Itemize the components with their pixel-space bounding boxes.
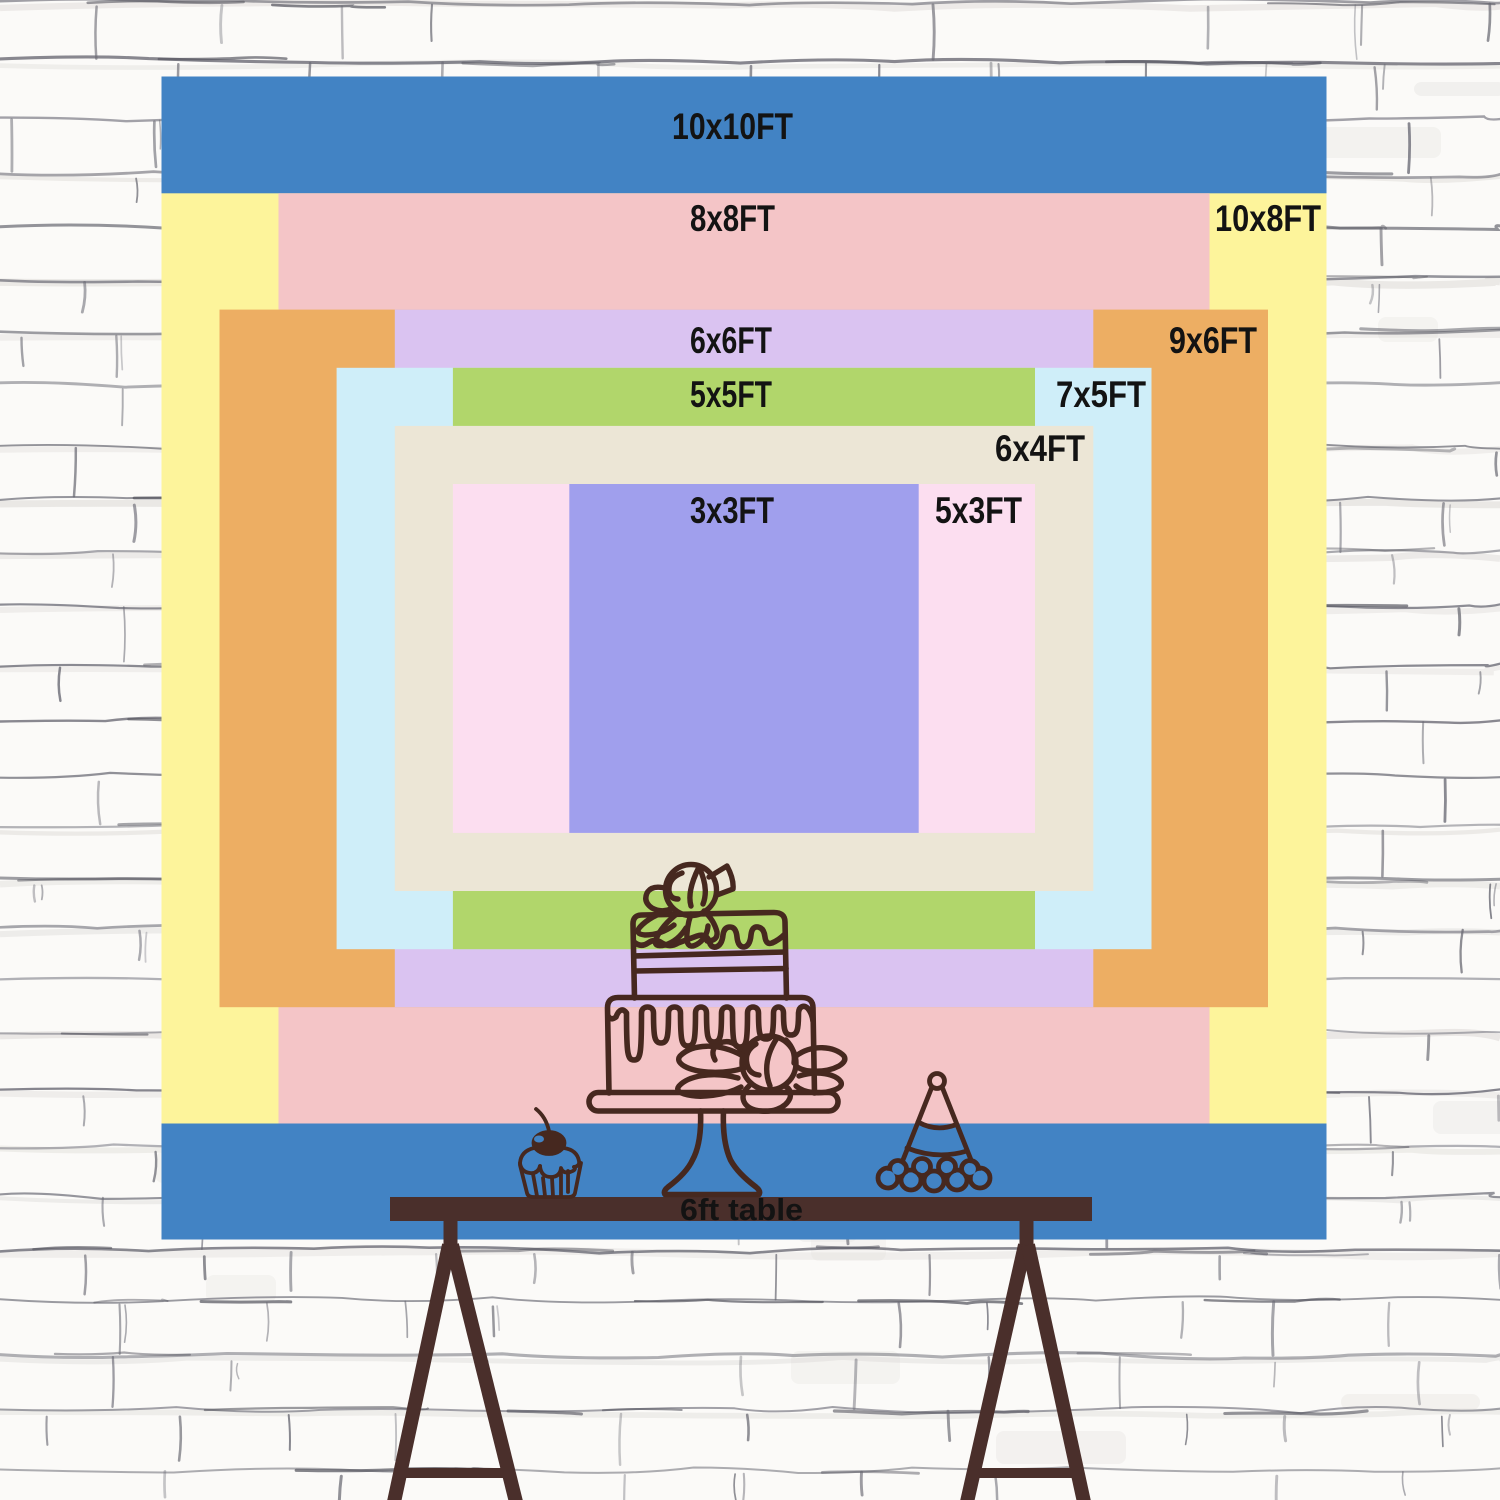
svg-text:6x6FT: 6x6FT [690, 320, 772, 361]
svg-text:6x4FT: 6x4FT [995, 428, 1085, 469]
svg-text:7x5FT: 7x5FT [1056, 374, 1146, 415]
svg-text:5x5FT: 5x5FT [690, 374, 772, 415]
svg-text:9x6FT: 9x6FT [1169, 320, 1257, 361]
svg-text:8x8FT: 8x8FT [690, 198, 775, 239]
svg-text:10x8FT: 10x8FT [1215, 198, 1321, 239]
svg-text:5x3FT: 5x3FT [935, 490, 1022, 531]
svg-text:10x10FT: 10x10FT [672, 106, 793, 147]
svg-text:3x3FT: 3x3FT [690, 490, 774, 531]
